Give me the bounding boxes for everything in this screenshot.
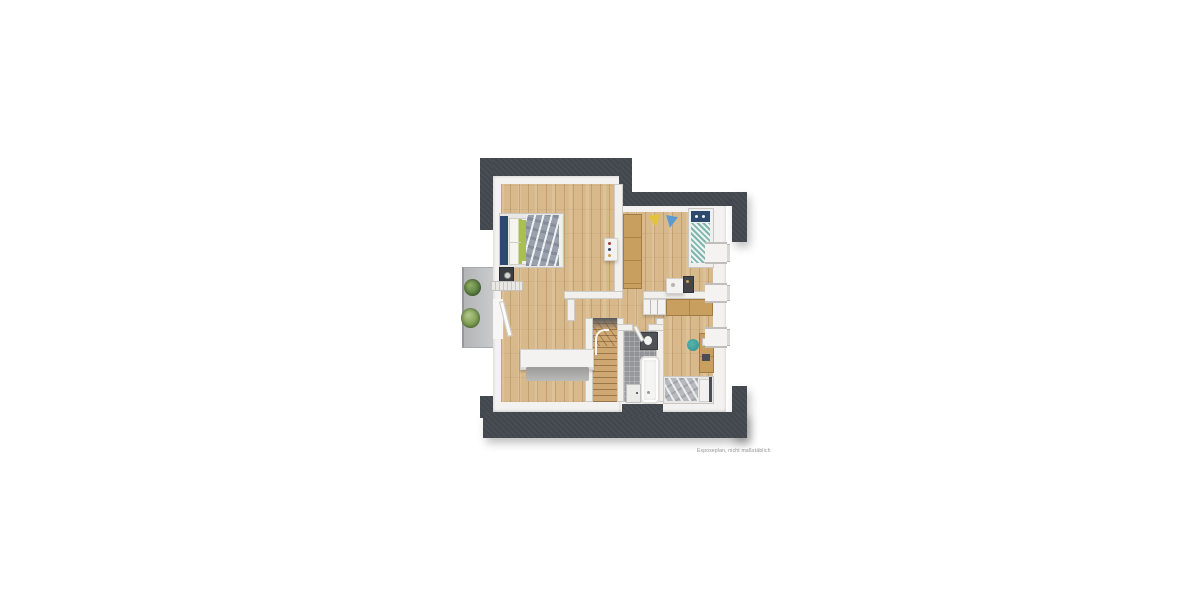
balcony-plant-icon: [461, 308, 480, 328]
bathtub-icon: [640, 356, 660, 404]
roof-band-entry-notch: [622, 404, 663, 416]
door-handle-icon: [636, 392, 638, 394]
desk-item: [702, 354, 710, 361]
balcony-plant-icon: [464, 279, 481, 296]
wall-bath-top-b: [648, 324, 664, 331]
shelf-item: [608, 242, 611, 245]
double-bed-icon: [499, 213, 564, 268]
kids-desk-icon: [666, 278, 684, 294]
wall-bath-top-a: [617, 324, 633, 331]
window-icon: [705, 242, 727, 264]
roof-band-right-upper: [732, 192, 747, 242]
wall-bedroom1-stub: [564, 291, 623, 299]
wall-hall-stub: [567, 299, 575, 321]
pillow-pattern: [702, 215, 705, 218]
roof-band-bottom: [483, 412, 747, 438]
pennant-blue-icon: [664, 215, 678, 229]
bed-footboard: [559, 215, 562, 266]
shelf-item: [608, 254, 611, 257]
washbasin-bowl-icon: [644, 336, 652, 345]
window-icon: [705, 283, 727, 303]
disclaimer-text: Exposeplan, nicht maßstäblich: [697, 448, 771, 454]
roof-band-top-left: [480, 158, 632, 176]
rug-icon: [526, 367, 589, 381]
stair-railing: [595, 329, 609, 355]
pillow-pattern: [695, 215, 698, 218]
bed-duvet: [526, 215, 559, 266]
floorplan-canvas: Exposeplan, nicht maßstäblich: [0, 0, 1200, 600]
pennant-yellow-icon: [648, 214, 662, 228]
roof-band-top-right: [619, 192, 747, 206]
pinboard-note: [686, 280, 689, 283]
desk-item: [671, 283, 675, 287]
teen-bed-icon: [663, 376, 714, 404]
teen-bed-duvet: [665, 378, 698, 401]
window-icon: [705, 327, 727, 348]
shower-door-icon: [626, 384, 641, 403]
wardrobe-icon: [623, 214, 642, 289]
teen-bed-headboard: [709, 377, 712, 402]
lamp-icon: [504, 272, 511, 279]
wall-shelf-icon: [604, 238, 618, 261]
pinboard-icon: [683, 276, 694, 293]
bed-headboard: [500, 216, 508, 265]
desk-chair-icon: [687, 339, 699, 351]
radiator-icon: [490, 281, 523, 291]
shelf-item: [608, 248, 611, 251]
roof-band-left-upper: [480, 158, 493, 230]
bathtub-drain-icon: [647, 391, 650, 394]
bed-pillow-band: [691, 211, 710, 222]
dresser-icon: [643, 299, 666, 315]
